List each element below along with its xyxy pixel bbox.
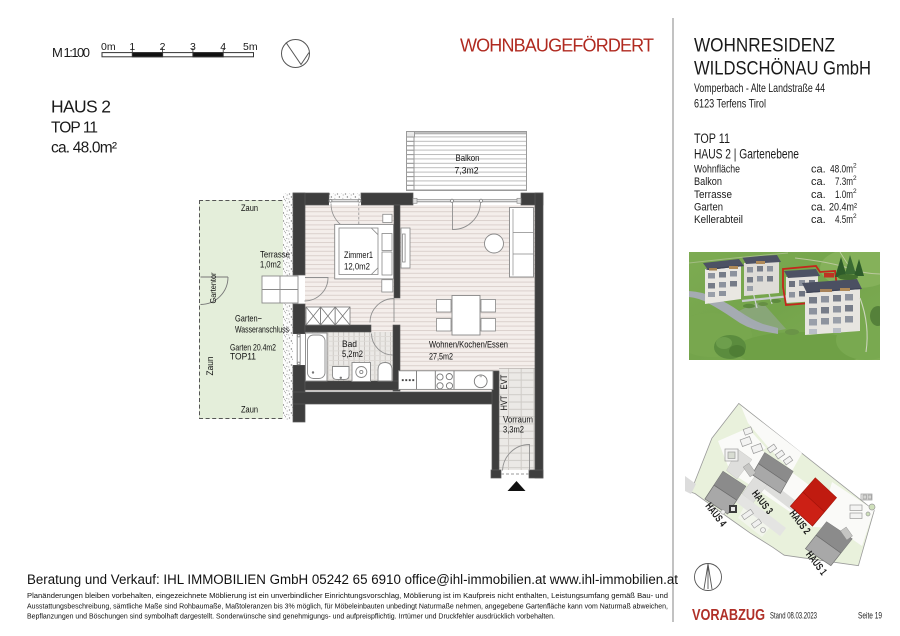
svg-text:0m: 0m xyxy=(101,41,116,53)
svg-text:27,5m2: 27,5m2 xyxy=(429,352,453,363)
svg-text:7.3m: 7.3m xyxy=(835,176,853,188)
svg-text:EVT: EVT xyxy=(499,374,510,389)
svg-text:3: 3 xyxy=(190,41,196,53)
svg-text:Zimmer1: Zimmer1 xyxy=(344,250,373,261)
svg-text:Vomperbach - Alte Landstraße 4: Vomperbach - Alte Landstraße 44 xyxy=(694,81,825,95)
svg-text:Beratung und Verkauf: IHL IMM: Beratung und Verkauf: IHL IMMOBILIEN Gmb… xyxy=(27,572,678,587)
svg-text:ca.: ca. xyxy=(811,189,826,201)
svg-text:Bepflanzungen und Böschungen s: Bepflanzungen und Böschungen sind symbol… xyxy=(27,612,555,621)
svg-text:Kellerabteil: Kellerabteil xyxy=(694,214,743,226)
svg-text:TOP11: TOP11 xyxy=(230,352,256,362)
svg-text:VORABZUG: VORABZUG xyxy=(692,607,765,624)
svg-text:ca.: ca. xyxy=(811,201,826,213)
svg-text:ca.: ca. xyxy=(811,176,826,188)
svg-text:4: 4 xyxy=(220,41,226,53)
svg-text:Ausstattungsbeschreibung, sämt: Ausstattungsbeschreibung, sämtliche Maße… xyxy=(27,601,668,610)
svg-text:Wohnen/Kochen/Essen: Wohnen/Kochen/Essen xyxy=(429,340,508,351)
svg-text:5m: 5m xyxy=(243,41,258,53)
svg-text:4.5m: 4.5m xyxy=(835,214,853,226)
svg-text:Terrasse: Terrasse xyxy=(694,189,732,201)
svg-text:ca.: ca. xyxy=(811,164,826,176)
svg-text:Balkon: Balkon xyxy=(694,176,722,188)
svg-text:ca. 48.0m²: ca. 48.0m² xyxy=(51,140,117,157)
svg-text:WOHNRESIDENZ: WOHNRESIDENZ xyxy=(694,35,835,57)
svg-text:TOP 11: TOP 11 xyxy=(694,131,730,146)
svg-text:Zaun: Zaun xyxy=(241,203,258,214)
svg-text:1: 1 xyxy=(129,41,135,53)
svg-text:WOHNBAUGEFÖRDERT: WOHNBAUGEFÖRDERT xyxy=(460,36,654,56)
svg-text:Planänderungen bleiben vorbeha: Planänderungen bleiben vorbehalten, eing… xyxy=(27,591,668,600)
svg-text:3,3m2: 3,3m2 xyxy=(503,425,524,436)
svg-text:2: 2 xyxy=(853,188,857,195)
svg-text:7,3m2: 7,3m2 xyxy=(455,166,479,177)
svg-text:48.0m: 48.0m xyxy=(830,164,853,176)
svg-text:2: 2 xyxy=(853,213,857,220)
svg-text:2: 2 xyxy=(853,175,857,182)
svg-text:Gartentor: Gartentor xyxy=(208,272,218,303)
svg-text:Zaun: Zaun xyxy=(241,405,258,416)
svg-text:12,0m2: 12,0m2 xyxy=(344,262,370,273)
svg-text:WILDSCHÖNAU GmbH: WILDSCHÖNAU GmbH xyxy=(694,58,871,80)
svg-text:1.0m: 1.0m xyxy=(835,189,853,201)
svg-text:HAUS 2 | Gartenebene: HAUS 2 | Gartenebene xyxy=(694,147,799,162)
svg-text:M 1:100: M 1:100 xyxy=(52,45,90,60)
svg-text:Seite 19: Seite 19 xyxy=(858,611,882,622)
svg-text:Garten: Garten xyxy=(694,201,723,213)
svg-text:TOP 11: TOP 11 xyxy=(51,120,98,137)
svg-text:2: 2 xyxy=(160,41,166,53)
svg-text:2: 2 xyxy=(853,163,857,170)
svg-text:Garten−: Garten− xyxy=(235,314,262,325)
svg-text:HAUS 2: HAUS 2 xyxy=(51,97,111,117)
svg-text:Wohnfläche: Wohnfläche xyxy=(694,164,740,176)
svg-text:1,0m2: 1,0m2 xyxy=(260,260,281,271)
svg-text:Wasseranschluss: Wasseranschluss xyxy=(235,325,289,336)
svg-text:Stand 08.03.2023: Stand 08.03.2023 xyxy=(770,611,817,622)
svg-text:Zaun: Zaun xyxy=(205,357,216,376)
svg-text:6123 Terfens Tirol: 6123 Terfens Tirol xyxy=(694,97,766,111)
svg-text:20.4m²: 20.4m² xyxy=(829,201,857,213)
svg-text:5,2m2: 5,2m2 xyxy=(342,349,363,360)
svg-text:HVT: HVT xyxy=(499,395,510,410)
svg-text:Balkon: Balkon xyxy=(456,153,480,164)
svg-text:ca.: ca. xyxy=(811,214,826,226)
